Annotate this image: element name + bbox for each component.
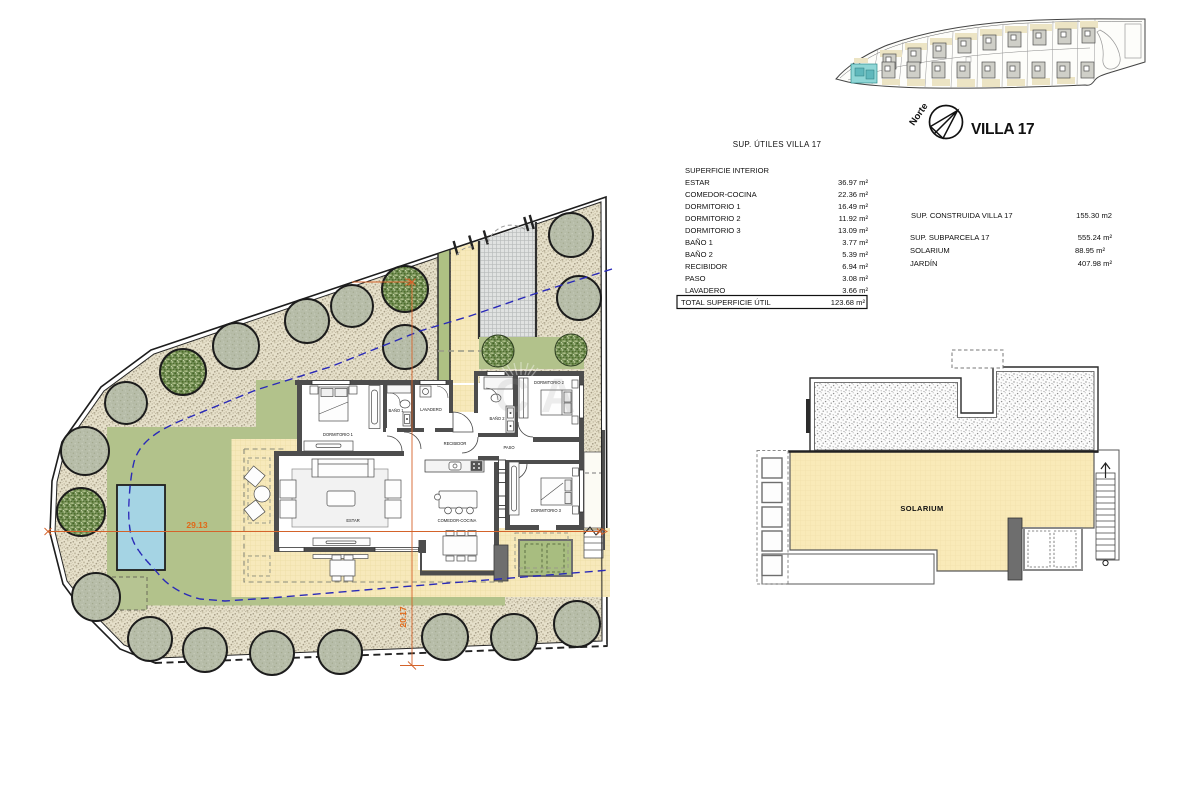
svg-text:13.09 m²: 13.09 m² — [838, 226, 868, 235]
svg-text:SOLARIUM: SOLARIUM — [910, 246, 950, 255]
svg-text:TOTAL SUPERFICIE ÚTIL: TOTAL SUPERFICIE ÚTIL — [681, 298, 771, 307]
svg-text:SUP. CONSTRUIDA VILLA 17: SUP. CONSTRUIDA VILLA 17 — [911, 211, 1013, 220]
svg-text:DORMITORIO 2: DORMITORIO 2 — [685, 214, 741, 223]
svg-text:SUP. ÚTILES VILLA 17: SUP. ÚTILES VILLA 17 — [733, 140, 822, 149]
svg-text:RECIBIDOR: RECIBIDOR — [685, 262, 728, 271]
svg-text:C A: C A — [495, 370, 576, 423]
svg-text:16.49 m²: 16.49 m² — [838, 202, 868, 211]
svg-text:COMEDOR-COCINA: COMEDOR-COCINA — [438, 518, 477, 523]
svg-text:3.77 m²: 3.77 m² — [842, 238, 868, 247]
svg-text:ESTAR: ESTAR — [346, 518, 359, 523]
svg-text:DORMITORIO 1: DORMITORIO 1 — [685, 202, 741, 211]
svg-text:SUPERFICIE INTERIOR: SUPERFICIE INTERIOR — [685, 166, 769, 175]
svg-text:3.08 m²: 3.08 m² — [842, 274, 868, 283]
svg-text:11.92 m²: 11.92 m² — [839, 214, 869, 223]
svg-text:BAÑO 2: BAÑO 2 — [685, 250, 713, 259]
svg-text:SOLARIUM: SOLARIUM — [900, 504, 943, 513]
svg-text:COMEDOR-COCINA: COMEDOR-COCINA — [685, 190, 758, 199]
svg-text:Norte: Norte — [907, 101, 930, 128]
svg-text:555.24 m²: 555.24 m² — [1078, 233, 1113, 242]
svg-text:PASO: PASO — [503, 445, 514, 450]
svg-text:123.68 m²: 123.68 m² — [831, 298, 866, 307]
svg-text:JARDÍN: JARDÍN — [910, 259, 937, 268]
svg-text:20.17: 20.17 — [398, 606, 408, 628]
svg-text:22.36 m²: 22.36 m² — [838, 190, 868, 199]
svg-text:3.66 m²: 3.66 m² — [842, 286, 868, 295]
svg-text:155.30 m2: 155.30 m2 — [1076, 211, 1112, 220]
svg-text:DORMITORIO 1: DORMITORIO 1 — [323, 432, 354, 437]
svg-text:6.94 m²: 6.94 m² — [842, 262, 868, 271]
svg-text:BAÑO 1: BAÑO 1 — [388, 408, 404, 413]
svg-text:PASO: PASO — [685, 274, 706, 283]
svg-text:36.97 m²: 36.97 m² — [838, 178, 868, 187]
svg-text:DORMITORIO 3: DORMITORIO 3 — [685, 226, 741, 235]
svg-text:29.13: 29.13 — [186, 520, 208, 530]
svg-text:VILLA 17: VILLA 17 — [971, 121, 1034, 138]
svg-text:SUP. SUBPARCELA 17: SUP. SUBPARCELA 17 — [910, 233, 990, 242]
svg-text:LAVADERO: LAVADERO — [420, 407, 442, 412]
svg-text:88.95 m²: 88.95 m² — [1075, 246, 1105, 255]
svg-text:DORMITORIO 3: DORMITORIO 3 — [531, 508, 562, 513]
svg-text:5.39 m²: 5.39 m² — [842, 250, 868, 259]
svg-text:407.98 m²: 407.98 m² — [1078, 259, 1113, 268]
svg-text:ESTAR: ESTAR — [685, 178, 710, 187]
svg-text:RECIBIDOR: RECIBIDOR — [444, 441, 467, 446]
svg-text:LAVADERO: LAVADERO — [685, 286, 725, 295]
svg-text:BAÑO 1: BAÑO 1 — [685, 238, 713, 247]
